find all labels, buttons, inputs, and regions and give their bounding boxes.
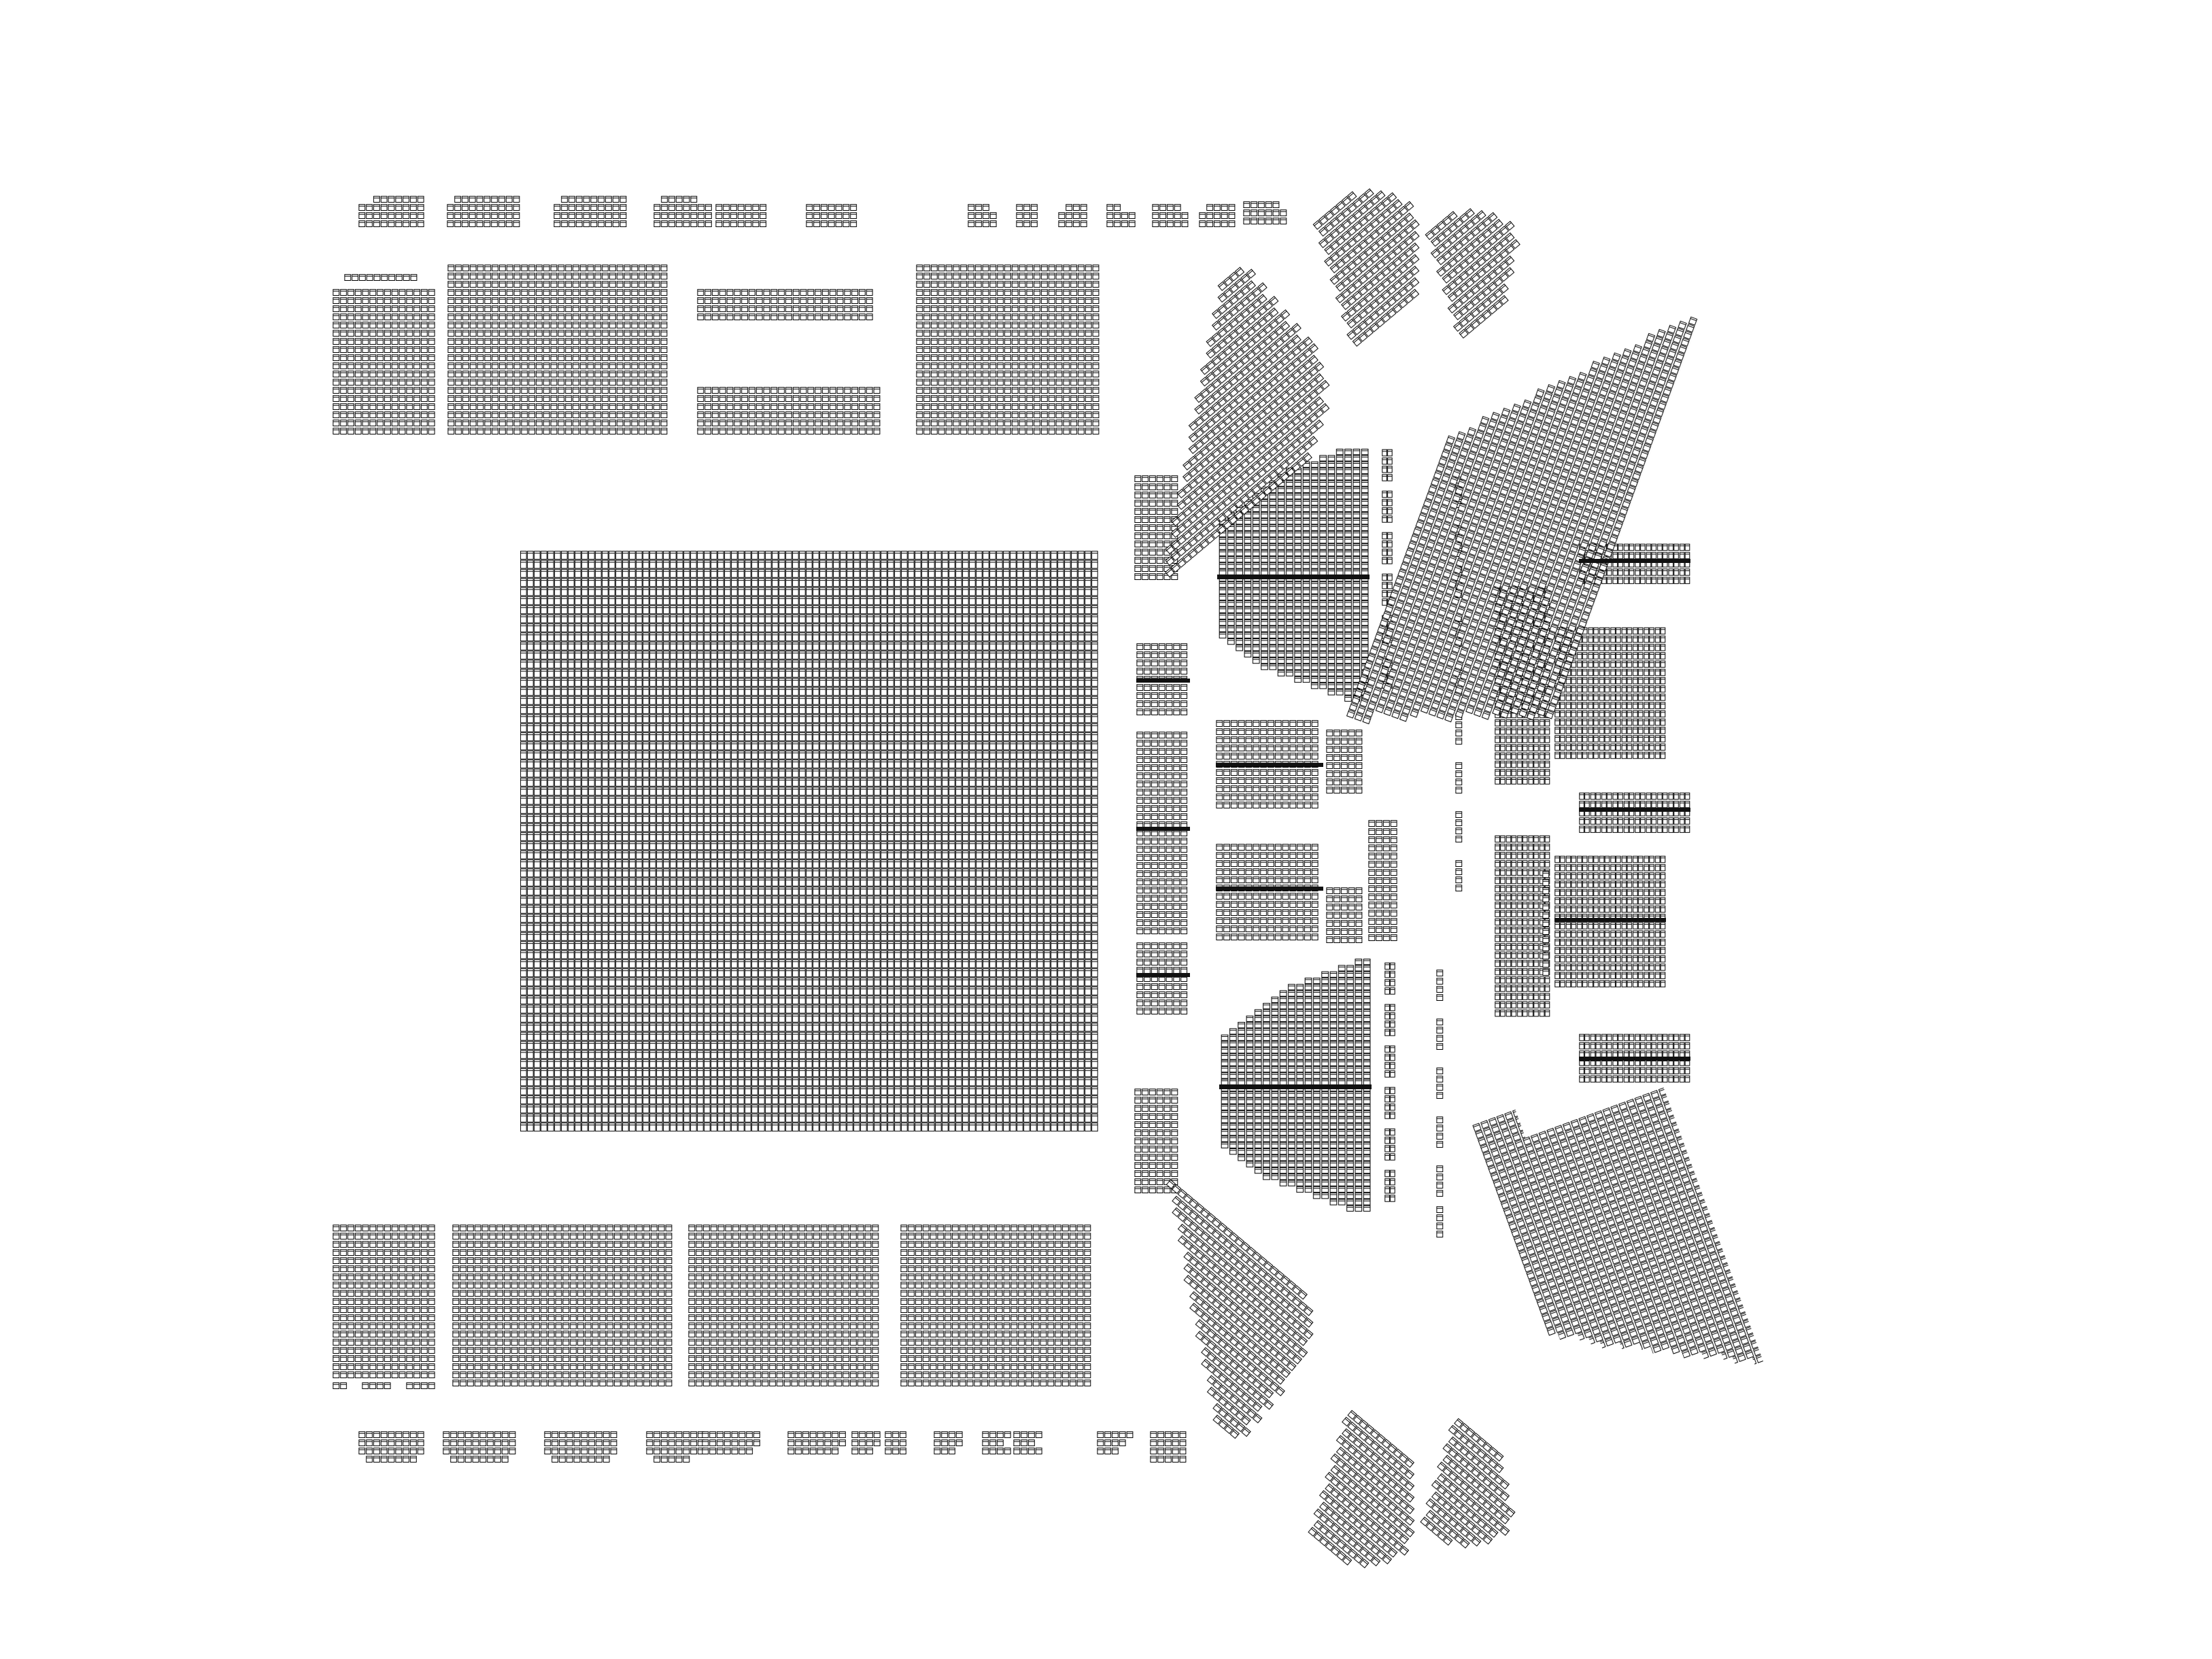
seat-row[interactable]: [702, 1439, 760, 1447]
seat-row[interactable]: [1097, 1431, 1134, 1439]
seat-blocks-layer: [333, 167, 1763, 1591]
top-strip-i[interactable]: [1058, 203, 1087, 228]
lower-band-1-r1[interactable]: [333, 1382, 347, 1390]
fan-top-a[interactable]: [1278, 167, 1461, 348]
seat-row[interactable]: [443, 1439, 516, 1447]
seat-row[interactable]: [554, 203, 627, 211]
seat-row[interactable]: [1199, 220, 1236, 228]
seat-row[interactable]: [443, 1431, 516, 1439]
seat-row[interactable]: [1150, 1447, 1187, 1455]
seat-row[interactable]: [715, 220, 767, 228]
seat-row[interactable]: [1136, 942, 1188, 1015]
seat-row[interactable]: [454, 195, 520, 203]
lower-band-4[interactable]: [900, 1224, 1091, 1387]
seat-row[interactable]: [1542, 870, 1550, 976]
seat-row[interactable]: [968, 203, 989, 211]
seat-row[interactable]: [653, 203, 712, 211]
seat-row[interactable]: [653, 220, 712, 228]
seat-row[interactable]: [885, 1447, 906, 1455]
walkway-line-7: [1216, 887, 1323, 891]
seat-row[interactable]: [333, 1224, 435, 1379]
seat-row[interactable]: [452, 1224, 673, 1387]
side-cols-4[interactable]: [1136, 942, 1188, 1015]
seat-row[interactable]: [806, 203, 857, 211]
seat-row[interactable]: [697, 386, 881, 435]
top-strip-g[interactable]: [968, 203, 997, 228]
lower-band-2[interactable]: [452, 1224, 673, 1387]
upper-band-1-toprow[interactable]: [344, 273, 418, 281]
seat-row[interactable]: [1579, 792, 1690, 834]
seat-row[interactable]: [1152, 220, 1189, 228]
seat-row[interactable]: [1136, 731, 1188, 935]
seat-row[interactable]: [715, 203, 767, 211]
seat-row[interactable]: [561, 195, 627, 203]
seat-row[interactable]: [806, 220, 857, 228]
seat-row[interactable]: [1384, 962, 1395, 995]
seat-row[interactable]: [1384, 1004, 1395, 1037]
walkway-line-8: [1579, 559, 1690, 563]
seat-row[interactable]: [1016, 203, 1038, 211]
seat-row[interactable]: [1302, 462, 1310, 683]
seat-row[interactable]: [373, 195, 425, 203]
side-cols-5[interactable]: [1134, 1088, 1178, 1194]
seat-row[interactable]: [1229, 1028, 1237, 1155]
seat-row[interactable]: [1382, 532, 1393, 565]
walkway-line-5: [1136, 973, 1190, 977]
seat-row[interactable]: [1238, 1022, 1246, 1161]
seat-row[interactable]: [982, 1431, 1011, 1439]
aisle-dots-lower[interactable]: [1436, 969, 1444, 1238]
seat-row[interactable]: [1221, 1035, 1229, 1148]
top-strip-c[interactable]: [554, 195, 627, 228]
fan-bottom-b[interactable]: [1391, 1418, 1545, 1571]
seat-row[interactable]: [646, 1439, 704, 1447]
top-strip-d[interactable]: [653, 195, 712, 228]
seat-row[interactable]: [520, 551, 1098, 1131]
seat-row[interactable]: [1058, 220, 1087, 228]
mid-block-1b[interactable]: [1326, 729, 1363, 794]
seat-row[interactable]: [885, 1431, 906, 1439]
seat-row[interactable]: [1384, 1128, 1395, 1161]
aisle-pairs-lower[interactable]: [1384, 962, 1395, 1203]
seat-row[interactable]: [1335, 449, 1344, 696]
seat-row[interactable]: [1319, 455, 1327, 689]
top-strip-m[interactable]: [1243, 201, 1287, 225]
seat-row[interactable]: [934, 1447, 955, 1455]
bottom-strip-3[interactable]: [544, 1431, 617, 1463]
seat-row[interactable]: [544, 1447, 617, 1455]
seat-row[interactable]: [443, 1447, 516, 1455]
seat-row[interactable]: [1016, 220, 1038, 228]
seat-row[interactable]: [1384, 1045, 1395, 1078]
seat-row[interactable]: [851, 1431, 881, 1439]
seat-row[interactable]: [1150, 1439, 1187, 1447]
seat-row[interactable]: [551, 1455, 610, 1463]
seat-row[interactable]: [1206, 203, 1236, 211]
seat-row[interactable]: [362, 1382, 391, 1390]
seat-row[interactable]: [1243, 217, 1287, 225]
seat-row[interactable]: [646, 1431, 704, 1439]
seat-row[interactable]: [1384, 1087, 1395, 1120]
seat-row[interactable]: [697, 288, 873, 321]
seat-row[interactable]: [358, 1447, 424, 1455]
seat-row[interactable]: [885, 1439, 906, 1447]
seat-row[interactable]: [1436, 1205, 1444, 1238]
seat-row[interactable]: [900, 1224, 1091, 1387]
bottom-strip-13[interactable]: [1150, 1431, 1187, 1463]
seat-row[interactable]: [1097, 1439, 1126, 1447]
seat-row[interactable]: [1152, 203, 1181, 211]
seat-row[interactable]: [1150, 1431, 1187, 1439]
seat-row[interactable]: [1243, 201, 1280, 209]
seat-row[interactable]: [1263, 1003, 1271, 1180]
walkway-line-6: [1216, 763, 1323, 767]
seat-row[interactable]: [333, 288, 435, 435]
seat-row[interactable]: [1382, 490, 1393, 524]
walkway-line-10: [1554, 918, 1666, 922]
seat-row[interactable]: [447, 203, 520, 211]
right-pairs-2[interactable]: [1579, 792, 1690, 834]
seat-row[interactable]: [1382, 449, 1393, 482]
seat-row[interactable]: [653, 211, 712, 220]
bottom-strip-11[interactable]: [1013, 1431, 1042, 1455]
seat-row[interactable]: [1106, 203, 1121, 211]
seat-row[interactable]: [1013, 1431, 1042, 1439]
seat-row[interactable]: [554, 211, 627, 220]
seat-row[interactable]: [1246, 1016, 1254, 1167]
seat-row[interactable]: [544, 1439, 617, 1447]
lower-band-1[interactable]: [333, 1224, 435, 1379]
mid-block-2b[interactable]: [1326, 887, 1363, 944]
upper-band-2[interactable]: [447, 264, 668, 435]
seat-row[interactable]: [1254, 1009, 1262, 1174]
seat-row[interactable]: [806, 211, 857, 220]
seat-row[interactable]: [1066, 203, 1087, 211]
seat-row[interactable]: [406, 1382, 435, 1390]
seat-row[interactable]: [358, 211, 424, 220]
bottom-strip-6[interactable]: [787, 1431, 846, 1455]
seat-row[interactable]: [1013, 1439, 1035, 1447]
seat-row[interactable]: [646, 1447, 704, 1455]
fan-top-b[interactable]: [1396, 186, 1550, 340]
seat-row[interactable]: [851, 1439, 881, 1447]
seating-plan-stage: [0, 0, 2212, 1659]
seat-row[interactable]: [1326, 887, 1363, 944]
seat-row[interactable]: [1436, 969, 1444, 1002]
seat-row[interactable]: [447, 220, 520, 228]
seat-row[interactable]: [787, 1431, 846, 1439]
lean-columns-bottom[interactable]: [1472, 1059, 1763, 1427]
walkway-line-3: [1136, 679, 1190, 683]
right-pairs-3b[interactable]: [1542, 870, 1550, 976]
seat-row[interactable]: [1384, 1169, 1395, 1203]
upper-band-3a[interactable]: [697, 288, 873, 321]
upper-band-3b[interactable]: [697, 386, 881, 435]
seat-row[interactable]: [1243, 209, 1287, 217]
seat-row[interactable]: [1058, 211, 1087, 220]
walkway-line-1: [1217, 575, 1369, 579]
side-cols-3[interactable]: [1136, 731, 1188, 935]
seat-row[interactable]: [982, 1439, 1004, 1447]
seat-row[interactable]: [447, 264, 668, 435]
lower-band-1-r3[interactable]: [406, 1382, 435, 1390]
seat-row[interactable]: [982, 1447, 1011, 1455]
seat-row[interactable]: [934, 1439, 963, 1447]
bottom-strip-2[interactable]: [443, 1431, 516, 1463]
seat-row[interactable]: [1495, 835, 1550, 1017]
bottom-strip-9[interactable]: [934, 1431, 963, 1455]
seat-row[interactable]: [787, 1439, 846, 1447]
seat-row[interactable]: [1455, 762, 1463, 794]
bottom-strip-4[interactable]: [646, 1431, 704, 1463]
seat-row[interactable]: [358, 1439, 424, 1447]
top-strip-l[interactable]: [1199, 203, 1236, 228]
seat-row[interactable]: [715, 211, 767, 220]
seat-row[interactable]: [554, 220, 627, 228]
seat-row[interactable]: [1016, 211, 1038, 220]
bottom-strip-1[interactable]: [358, 1431, 424, 1463]
upper-band-1[interactable]: [333, 288, 435, 435]
seat-row[interactable]: [1216, 843, 1318, 941]
fan-bottom-a[interactable]: [1272, 1409, 1455, 1591]
right-pairs-3a[interactable]: [1495, 835, 1550, 1017]
seat-row[interactable]: [1106, 220, 1136, 228]
seat-row[interactable]: [968, 220, 997, 228]
top-strip-e[interactable]: [715, 203, 767, 228]
seat-row[interactable]: [344, 273, 418, 281]
seat-row[interactable]: [1152, 211, 1189, 220]
walkway-line-2: [1219, 1084, 1372, 1089]
walkway-line-4: [1136, 827, 1190, 831]
walkway-line-11: [1579, 1057, 1690, 1061]
seat-row[interactable]: [333, 1382, 347, 1390]
bottom-strip-10[interactable]: [982, 1431, 1011, 1455]
seat-row[interactable]: [1436, 1116, 1444, 1148]
top-strip-a[interactable]: [358, 195, 424, 228]
seat-row[interactable]: [1436, 1165, 1444, 1197]
seat-row[interactable]: [358, 1431, 424, 1439]
seat-row[interactable]: [661, 195, 698, 203]
top-strip-j[interactable]: [1106, 203, 1136, 228]
seat-row[interactable]: [358, 203, 424, 211]
seat-row[interactable]: [1134, 1088, 1178, 1194]
fan-bowl-lower[interactable]: [1068, 1179, 1342, 1445]
mid-block-2c[interactable]: [1368, 819, 1397, 942]
seat-row[interactable]: [1436, 1018, 1444, 1050]
seat-row[interactable]: [1455, 810, 1463, 843]
top-strip-k[interactable]: [1152, 203, 1189, 228]
seat-row[interactable]: [968, 211, 997, 220]
seat-row[interactable]: [1436, 1067, 1444, 1099]
seat-row[interactable]: [1326, 729, 1363, 794]
bottom-strip-7[interactable]: [851, 1431, 881, 1455]
seat-row[interactable]: [916, 264, 1100, 435]
seat-row[interactable]: [450, 1455, 509, 1463]
seat-row[interactable]: [702, 1431, 760, 1439]
seat-row[interactable]: [787, 1447, 839, 1455]
seat-row[interactable]: [544, 1431, 617, 1439]
seat-row[interactable]: [1106, 211, 1136, 220]
seat-row[interactable]: [447, 211, 520, 220]
seat-row[interactable]: [1097, 1447, 1119, 1455]
seat-row[interactable]: [934, 1431, 963, 1439]
seat-row[interactable]: [1150, 1455, 1187, 1463]
seat-row[interactable]: [1368, 819, 1397, 942]
seat-row[interactable]: [702, 1447, 753, 1455]
lower-band-3[interactable]: [688, 1224, 879, 1387]
seat-map-svg: [0, 0, 2212, 1659]
seat-row[interactable]: [851, 1447, 873, 1455]
floor-center[interactable]: [520, 551, 1098, 1131]
seat-row[interactable]: [688, 1224, 879, 1387]
seat-row[interactable]: [653, 1455, 690, 1463]
seat-row[interactable]: [366, 1455, 418, 1463]
upper-band-4[interactable]: [916, 264, 1100, 435]
bottom-strip-5[interactable]: [702, 1431, 760, 1455]
mid-block-2[interactable]: [1216, 843, 1318, 941]
bottom-strip-12[interactable]: [1097, 1431, 1134, 1455]
seat-row[interactable]: [358, 220, 424, 228]
seat-row[interactable]: [1199, 211, 1236, 220]
seat-row[interactable]: [1285, 468, 1293, 677]
walkway-line-9: [1579, 808, 1690, 812]
seat-row[interactable]: [1455, 859, 1463, 892]
bottom-strip-8[interactable]: [885, 1431, 906, 1455]
top-strip-f[interactable]: [806, 203, 857, 228]
top-strip-h[interactable]: [1016, 203, 1038, 228]
lower-band-1-r2[interactable]: [362, 1382, 391, 1390]
top-strip-b[interactable]: [447, 195, 520, 228]
seat-row[interactable]: [1013, 1447, 1042, 1455]
